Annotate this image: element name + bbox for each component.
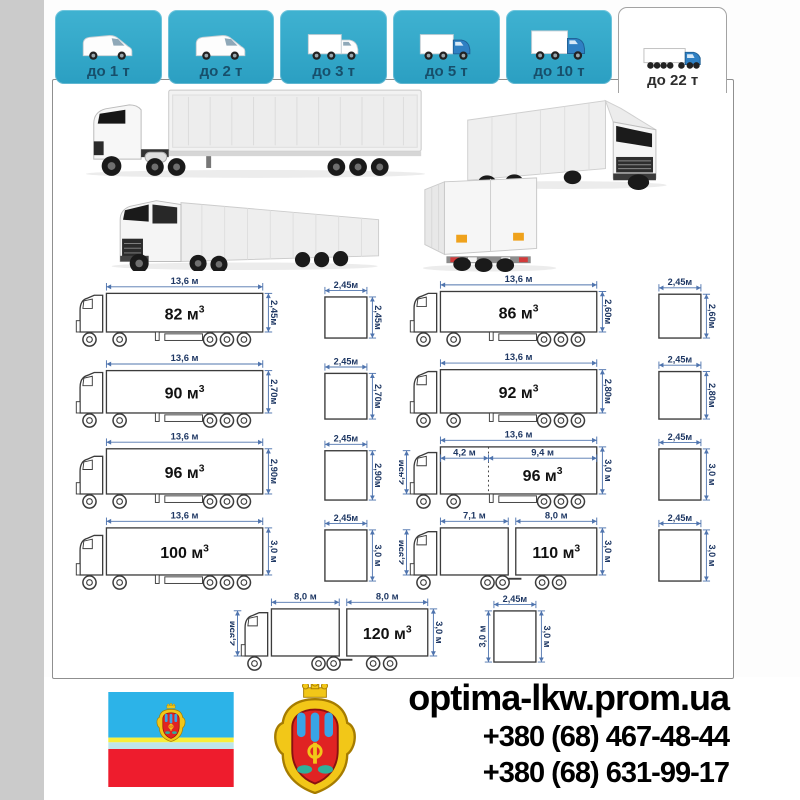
svg-text:2,80м: 2,80м	[603, 379, 614, 404]
svg-text:2,45м: 2,45м	[334, 434, 359, 444]
truck-photo-side-view	[78, 84, 433, 178]
svg-text:13,6 м: 13,6 м	[171, 352, 199, 363]
truck-diagram-82m3: 13,6 м82 м3 2,45м	[65, 266, 291, 354]
left-gray-strip	[0, 0, 44, 800]
site-url: optima-lkw.prom.ua	[408, 677, 729, 719]
truck-diagram-86m3: 13,6 м86 м3 2,60м	[399, 266, 625, 354]
svg-text:120 м3: 120 м3	[363, 624, 412, 643]
truck-photo-side-quarter-view	[101, 176, 393, 271]
svg-text:3,0 м: 3,0 м	[707, 463, 717, 485]
svg-text:2,45м: 2,45м	[399, 460, 406, 485]
truck-diagram-100m3: 13,6 м100 м3 3,0 м	[65, 509, 291, 597]
svg-text:2,45м: 2,45м	[668, 513, 693, 523]
svg-text:2,95м: 2,95м	[230, 621, 237, 646]
svg-text:2,70м: 2,70м	[269, 379, 280, 404]
svg-text:2,45м: 2,45м	[668, 354, 693, 364]
svg-text:13,6 м: 13,6 м	[505, 428, 533, 439]
semi-truck-icon	[642, 34, 704, 72]
tab-label: до 3 т	[312, 63, 355, 80]
tab-up-to-22t[interactable]: до 22 т	[618, 7, 727, 93]
cross-section-4-2: 2,45м3,0 м	[303, 508, 387, 597]
tab-label: до 1 т	[87, 63, 130, 80]
box-truck-blue-icon	[418, 25, 474, 63]
truck-diagram-96m3: 13,6 м4,2 м9,4 м96 м32,45м 3,0 м	[399, 428, 625, 516]
tab-label: до 10 т	[533, 63, 584, 80]
svg-text:8,0 м: 8,0 м	[294, 590, 317, 601]
svg-text:90 м3: 90 м3	[165, 384, 205, 403]
svg-text:2,60м: 2,60м	[707, 304, 717, 329]
tab-label: до 5 т	[425, 63, 468, 80]
svg-text:2,90м: 2,90м	[269, 459, 280, 484]
tab-up-to-2t[interactable]: до 2 т	[168, 10, 275, 84]
coat-of-arms-image	[265, 684, 365, 794]
svg-text:9,4 м: 9,4 м	[531, 446, 554, 457]
svg-text:3,0 м: 3,0 м	[373, 544, 383, 566]
truck-diagram-92m3: 13,6 м92 м3 2,80м	[399, 347, 625, 435]
cross-section-3-2: 2,45м2,90м	[303, 427, 387, 516]
cross-section-3-4: 2,45м3,0 м	[637, 427, 721, 516]
tab-up-to-1t[interactable]: до 1 т	[55, 10, 162, 84]
van-icon	[193, 25, 249, 63]
svg-text:2,95м: 2,95м	[399, 540, 406, 565]
svg-text:92 м3: 92 м3	[499, 383, 539, 402]
svg-text:8,0 м: 8,0 м	[545, 509, 568, 520]
truck-diagrams: 13,6 м82 м3 2,45м2,45м2,45м13,6 м86 м3 2…	[53, 273, 733, 678]
cross-section-2-2: 2,45м2,70м	[303, 346, 387, 435]
truck-photos	[53, 80, 733, 273]
svg-text:96 м3: 96 м3	[165, 463, 205, 482]
svg-text:2,45м: 2,45м	[503, 594, 528, 604]
cross-section-5-2: 2,45м3,0 м3,0 м	[472, 589, 556, 678]
diagram-row-3: 13,6 м96 м3 2,90м2,45м2,90м13,6 м4,2 м9,…	[53, 435, 733, 516]
truck-diagram-120m3: 8,0 м8,0 м120 м32,95м 3,0 м	[230, 590, 456, 678]
box-truck-large-icon	[530, 25, 588, 63]
svg-text:100 м3: 100 м3	[160, 543, 209, 562]
diagram-row-5: 8,0 м8,0 м120 м32,95м 3,0 м2,45м3,0 м3,0…	[53, 597, 733, 678]
svg-text:13,6 м: 13,6 м	[505, 273, 533, 284]
svg-text:2,80м: 2,80м	[707, 383, 717, 408]
box-truck-icon	[306, 25, 362, 63]
svg-text:96 м3: 96 м3	[523, 466, 563, 485]
svg-text:8,0 м: 8,0 м	[376, 590, 399, 601]
svg-text:3,0 м: 3,0 м	[603, 459, 614, 482]
svg-text:13,6 м: 13,6 м	[505, 351, 533, 362]
cross-section-1-2: 2,45м2,45м	[303, 265, 387, 354]
svg-text:2,45м: 2,45м	[334, 280, 359, 290]
svg-text:82 м3: 82 м3	[165, 305, 205, 324]
svg-text:2,70м: 2,70м	[373, 384, 383, 409]
truck-diagram-90m3: 13,6 м90 м3 2,70м	[65, 347, 291, 435]
svg-text:2,90м: 2,90м	[373, 463, 383, 488]
svg-text:4,2 м: 4,2 м	[453, 446, 476, 457]
svg-text:2,45м: 2,45м	[269, 300, 280, 325]
truck-diagram-96m3: 13,6 м96 м3 2,90м	[65, 428, 291, 516]
page: до 1 т до 2 т до 3 т до 5 т до 10 т	[0, 0, 800, 800]
svg-text:86 м3: 86 м3	[499, 304, 539, 323]
svg-text:3,0 м: 3,0 м	[542, 625, 552, 647]
svg-text:2,45м: 2,45м	[334, 513, 359, 523]
cross-section-2-4: 2,45м2,80м	[637, 346, 721, 435]
svg-text:13,6 м: 13,6 м	[171, 430, 199, 441]
cross-section-4-4: 2,45м3,0 м	[637, 508, 721, 597]
svg-text:2,45м: 2,45м	[373, 305, 383, 330]
tab-label: до 22 т	[647, 72, 698, 89]
truck-photo-rear-view	[415, 172, 570, 272]
tab-bar: до 1 т до 2 т до 3 т до 5 т до 10 т	[55, 6, 727, 84]
diagram-row-4: 13,6 м100 м3 3,0 м2,45м3,0 м7,1 м8,0 м11…	[53, 516, 733, 597]
phone-number-1: +380 (68) 467-48-44	[408, 719, 729, 755]
svg-text:3,0 м: 3,0 м	[434, 621, 445, 644]
svg-text:13,6 м: 13,6 м	[171, 275, 199, 286]
svg-text:110 м3: 110 м3	[532, 543, 580, 562]
svg-text:7,1 м: 7,1 м	[463, 509, 486, 520]
svg-text:2,45м: 2,45м	[334, 356, 359, 366]
cross-section-1-4: 2,45м2,60м	[637, 265, 721, 354]
svg-text:13,6 м: 13,6 м	[171, 509, 199, 520]
tab-label: до 2 т	[200, 63, 243, 80]
svg-text:2,45м: 2,45м	[668, 277, 693, 287]
tab-up-to-10t[interactable]: до 10 т	[506, 10, 613, 84]
truck-diagram-110m3: 7,1 м8,0 м110 м32,95м 3,0 м	[399, 509, 625, 597]
phone-number-2: +380 (68) 631-99-17	[408, 755, 729, 791]
svg-text:2,60м: 2,60м	[603, 299, 614, 324]
tab-up-to-5t[interactable]: до 5 т	[393, 10, 500, 84]
svg-text:2,45м: 2,45м	[668, 432, 693, 442]
svg-text:3,0 м: 3,0 м	[707, 544, 717, 566]
svg-text:3,0 м: 3,0 м	[269, 540, 280, 563]
footer: optima-lkw.prom.ua +380 (68) 467-48-44 +…	[44, 677, 800, 800]
flag-image	[108, 692, 234, 787]
diagram-row-1: 13,6 м82 м3 2,45м2,45м2,45м13,6 м86 м3 2…	[53, 273, 733, 354]
content-panel: 13,6 м82 м3 2,45м2,45м2,45м13,6 м86 м3 2…	[52, 79, 734, 679]
svg-text:3,0 м: 3,0 м	[478, 625, 488, 647]
contact-block: optima-lkw.prom.ua +380 (68) 467-48-44 +…	[408, 677, 729, 791]
tab-up-to-3t[interactable]: до 3 т	[280, 10, 387, 84]
svg-text:3,0 м: 3,0 м	[603, 540, 614, 563]
diagram-row-2: 13,6 м90 м3 2,70м2,45м2,70м13,6 м92 м3 2…	[53, 354, 733, 435]
van-icon	[80, 25, 136, 63]
